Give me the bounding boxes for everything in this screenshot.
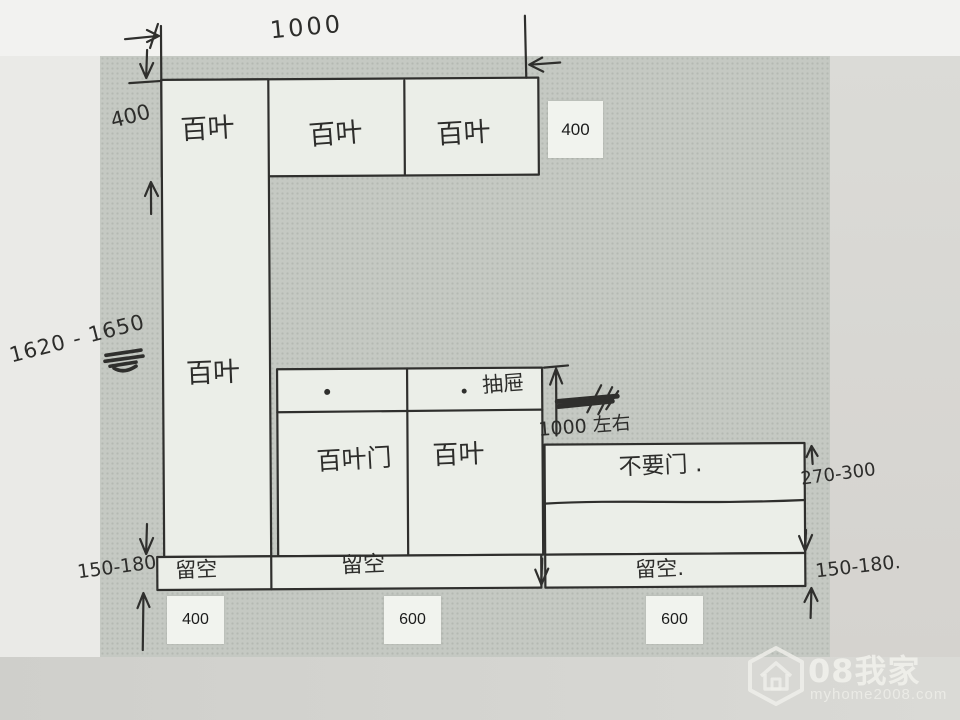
house-logo-icon (746, 644, 806, 708)
top-cell-label-1: 百叶 (180, 114, 235, 144)
watermark-site-text: myhome2008.com (810, 686, 947, 703)
dim-top-right-arrow (529, 58, 560, 72)
right-cabinet-label: 不要门 . (618, 453, 702, 479)
drawer-knob-left (324, 389, 330, 395)
dim-gap-right-up-arrow (804, 588, 817, 618)
dim-right-up-arrow (807, 446, 818, 464)
photographed-cabinet-sketch: 1000 400 1620 - 1650 1000 左右 270-300 150… (0, 0, 960, 720)
sketch-layer: 1000 400 1620 - 1650 1000 左右 270-300 150… (0, 0, 960, 720)
tall-cabinet-outline (161, 79, 271, 557)
bottom-cell-label-3: 留空. (635, 558, 685, 581)
mid-cell-label-2: 百叶 (432, 441, 485, 469)
dim-height-up-arrow (145, 182, 158, 214)
printed-width-label-1: 400 (167, 596, 224, 644)
watermark: 08我家 myhome2008.com (746, 638, 958, 718)
bottom-cell-label-1: 留空 (175, 559, 218, 582)
bottom-cell-label-2: 留空 (341, 554, 386, 578)
dim-gap-left-up-arrow (137, 593, 149, 650)
printed-depth-label: 400 (548, 101, 603, 158)
drawer-knob-right (462, 389, 467, 394)
dim-height-down-arrow (140, 524, 153, 554)
tall-cabinet-label: 百叶 (186, 359, 241, 388)
mid-cell-label-1: 百叶门 (316, 445, 392, 474)
top-cell-label-3: 百叶 (436, 119, 491, 149)
printed-width-label-2: 600 (384, 596, 441, 644)
scribble-left (105, 350, 143, 371)
drawer-label: 抽屉 (481, 372, 524, 396)
top-cell-label-2: 百叶 (308, 119, 364, 150)
printed-width-label-3: 600 (646, 596, 703, 644)
top-row-divider (404, 80, 405, 175)
middle-divider (407, 368, 408, 555)
dim-width-top-label: 1000 (269, 12, 344, 43)
dim-top-right-tick (525, 16, 526, 78)
